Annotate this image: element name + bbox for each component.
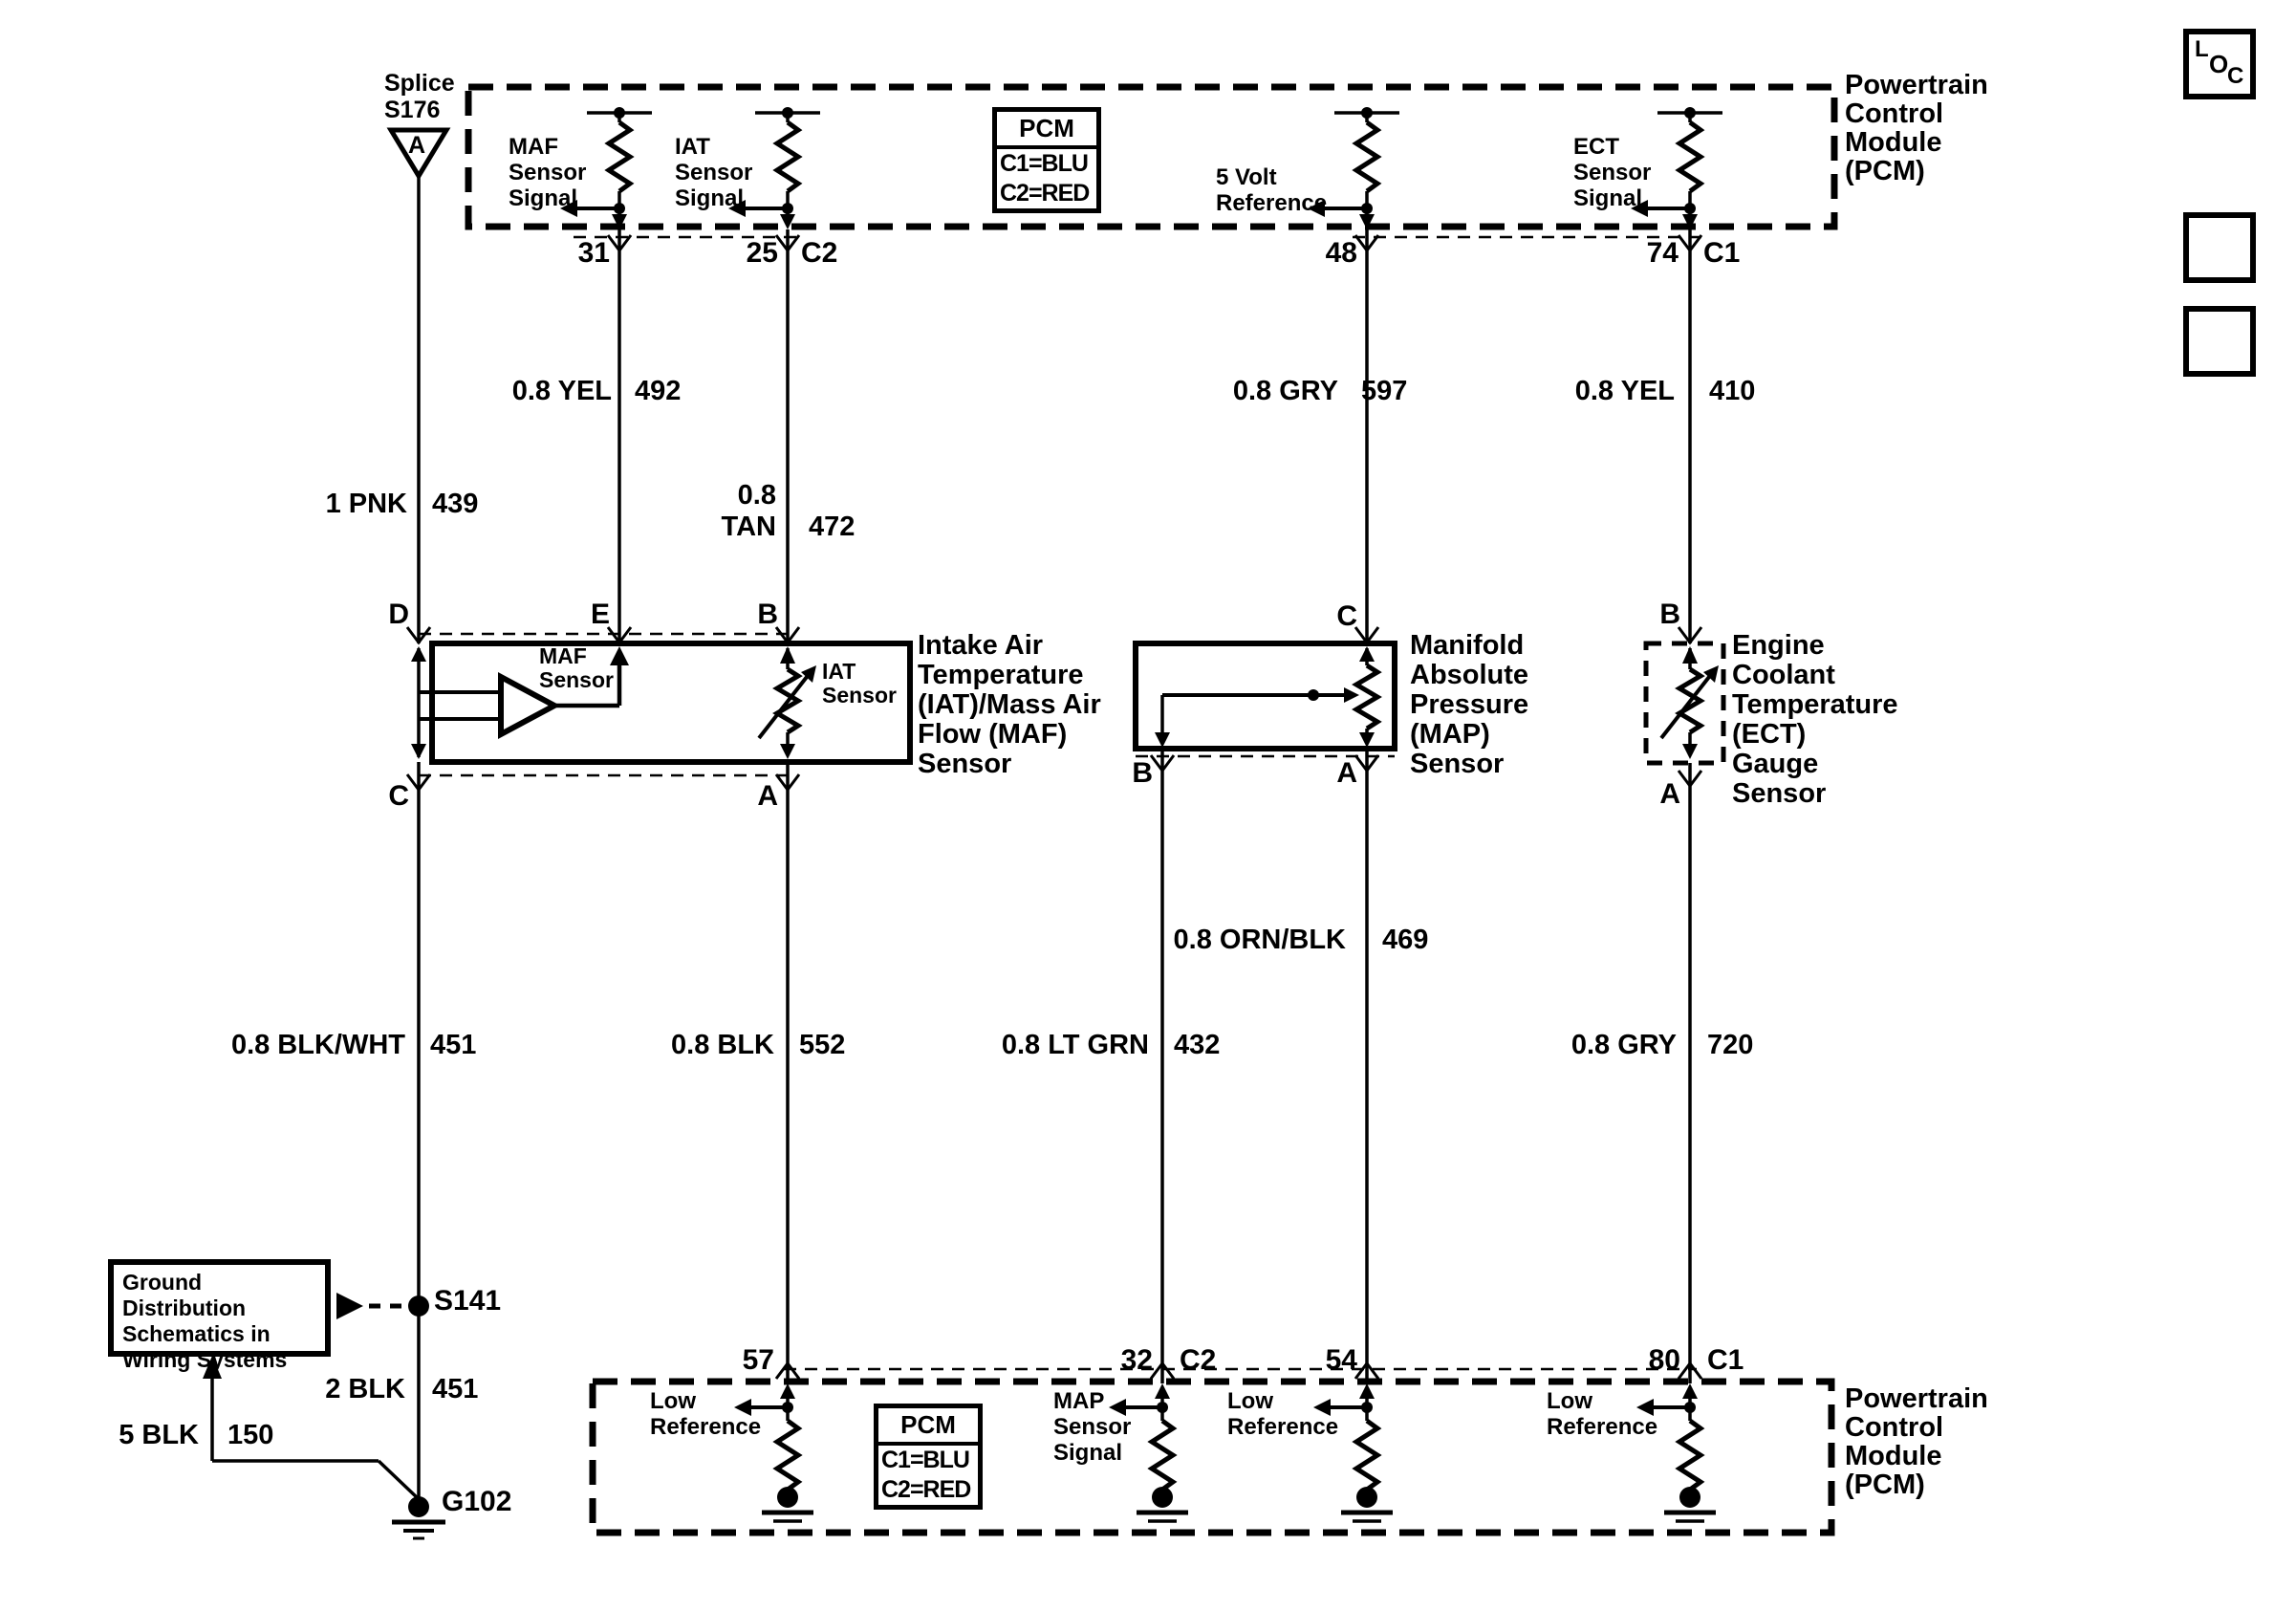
circuit-451b: 451: [432, 1375, 478, 1405]
ground-distribution-note: Ground Distribution Schematics in Wiring…: [108, 1259, 331, 1357]
splice-terminal-label: A: [408, 133, 425, 160]
pin-80: 80: [1623, 1344, 1680, 1376]
circuit-469: 469: [1382, 925, 1428, 956]
ground-symbol-icon: [392, 1522, 445, 1538]
terminal-d: D: [380, 599, 409, 630]
circuit-720: 720: [1707, 1031, 1753, 1061]
pin-25: 25: [721, 237, 778, 269]
wire-label-blk-451: 2 BLK: [214, 1375, 405, 1405]
pin-32: 32: [1095, 1344, 1153, 1376]
pcm-bottom-legend: PCM C1=BLU C2=RED: [874, 1404, 983, 1510]
wire-label-yel-492: 0.8 YEL: [401, 377, 612, 407]
pin-74-connector: C1: [1703, 237, 1740, 269]
circuit-439: 439: [432, 490, 478, 520]
circuit-432: 432: [1174, 1031, 1220, 1061]
terminal-a-ect: A: [1652, 778, 1680, 810]
wire-label-yel-410: 0.8 YEL: [1464, 377, 1675, 407]
pin-48: 48: [1300, 237, 1357, 269]
forward-button[interactable]: [2183, 212, 2256, 283]
wire-label-gry-720: 0.8 GRY: [1485, 1031, 1677, 1061]
wire-label-blk-wht-451: 0.8 BLK/WHT: [214, 1031, 405, 1061]
pcm-top-title: Powertrain Control Module (PCM): [1845, 71, 1988, 185]
wire-label-pnk-439: 1 PNK: [216, 490, 407, 520]
pin-57: 57: [717, 1344, 774, 1376]
wire-label-blk-150: 5 BLK: [8, 1421, 199, 1451]
terminal-e: E: [581, 599, 610, 630]
ground-g102-dot: [408, 1496, 429, 1517]
maf-iat-sensor-title: Intake Air Temperature (IAT)/Mass Air Fl…: [918, 631, 1101, 779]
pcm-legend-c2-bottom: C2=RED: [878, 1475, 978, 1505]
pin-80-connector: C1: [1707, 1344, 1744, 1376]
loc-letter-c: C: [2227, 63, 2243, 90]
map-sensor-title: Manifold Absolute Pressure (MAP) Sensor: [1410, 631, 1528, 779]
ground-g102-label: G102: [442, 1486, 511, 1517]
terminal-c: C: [380, 780, 409, 812]
wire-label-orn-blk-469: 0.8 ORN/BLK: [1136, 925, 1346, 956]
terminal-b-iat: B: [749, 599, 778, 630]
pin-54: 54: [1300, 1344, 1357, 1376]
maf-iat-internals: [411, 646, 816, 759]
wire-label-gry-597: 0.8 GRY: [1128, 377, 1338, 407]
terminal-b-ect: B: [1652, 599, 1680, 630]
terminal-a-map: A: [1329, 757, 1357, 789]
pcm-legend-c1: C1=BLU: [997, 149, 1096, 179]
terminal-a-iat: A: [749, 780, 778, 812]
wiring-diagram-page: Splice S176 A MAF Sensor Signal IAT Sens…: [0, 0, 2296, 1611]
low-reference-iat-label: Low Reference: [650, 1388, 761, 1440]
pcm-bottom-title: Powertrain Control Module (PCM): [1845, 1384, 1988, 1499]
circuit-597: 597: [1361, 377, 1407, 407]
circuit-552: 552: [799, 1031, 845, 1061]
low-reference-map-label: Low Reference: [1227, 1388, 1338, 1440]
circuit-150: 150: [227, 1421, 273, 1451]
pcm-top-legend: PCM C1=BLU C2=RED: [992, 107, 1101, 213]
circuit-451: 451: [430, 1031, 476, 1061]
loc-letter-o: O: [2209, 50, 2228, 79]
maf-signal-label: MAF Sensor Signal: [509, 134, 586, 211]
ect-sensor-title: Engine Coolant Temperature (ECT) Gauge S…: [1732, 631, 1898, 809]
pcm-legend-c2: C2=RED: [997, 179, 1096, 208]
splice-s141-dot: [408, 1295, 429, 1317]
back-button[interactable]: [2183, 306, 2256, 377]
circuit-410: 410: [1709, 377, 1755, 407]
pcm-legend-title: PCM: [997, 112, 1096, 149]
pin-32-connector: C2: [1180, 1344, 1216, 1376]
pin-31: 31: [552, 237, 610, 269]
map-signal-label: MAP Sensor Signal: [1053, 1388, 1131, 1466]
reference-arrow-icon: [336, 1293, 363, 1319]
wire-label-blk-552: 0.8 BLK: [583, 1031, 774, 1061]
iat-signal-label: IAT Sensor Signal: [675, 134, 752, 211]
pcm-legend-title-bottom: PCM: [878, 1408, 978, 1446]
splice-s176-label: Splice S176: [384, 71, 455, 123]
loc-letter-l: L: [2195, 36, 2209, 63]
wire-label-tan-472: 0.8 TAN: [585, 480, 776, 543]
ect-signal-label: ECT Sensor Signal: [1573, 134, 1651, 211]
pin-74: 74: [1621, 237, 1679, 269]
low-reference-ect-label: Low Reference: [1547, 1388, 1657, 1440]
splice-s141-label: S141: [434, 1285, 501, 1317]
terminal-b-map: B: [1124, 757, 1153, 789]
ect-thermistor-icon: [1661, 646, 1719, 759]
loc-button[interactable]: L O C: [2183, 29, 2256, 99]
maf-sensor-inner-label: MAF Sensor: [539, 644, 614, 692]
iat-sensor-inner-label: IAT Sensor: [822, 660, 897, 708]
pcm-legend-c1-bottom: C1=BLU: [878, 1446, 978, 1475]
circuit-472: 472: [809, 512, 855, 543]
map-internals: [1155, 646, 1377, 748]
wire-label-lt-grn-432: 0.8 LT GRN: [958, 1031, 1149, 1061]
terminal-c-map: C: [1329, 600, 1357, 632]
five-volt-reference-label: 5 Volt Reference: [1216, 164, 1327, 216]
iat-thermistor-icon: [759, 646, 816, 759]
circuit-492: 492: [635, 377, 681, 407]
pin-25-connector: C2: [801, 237, 837, 269]
